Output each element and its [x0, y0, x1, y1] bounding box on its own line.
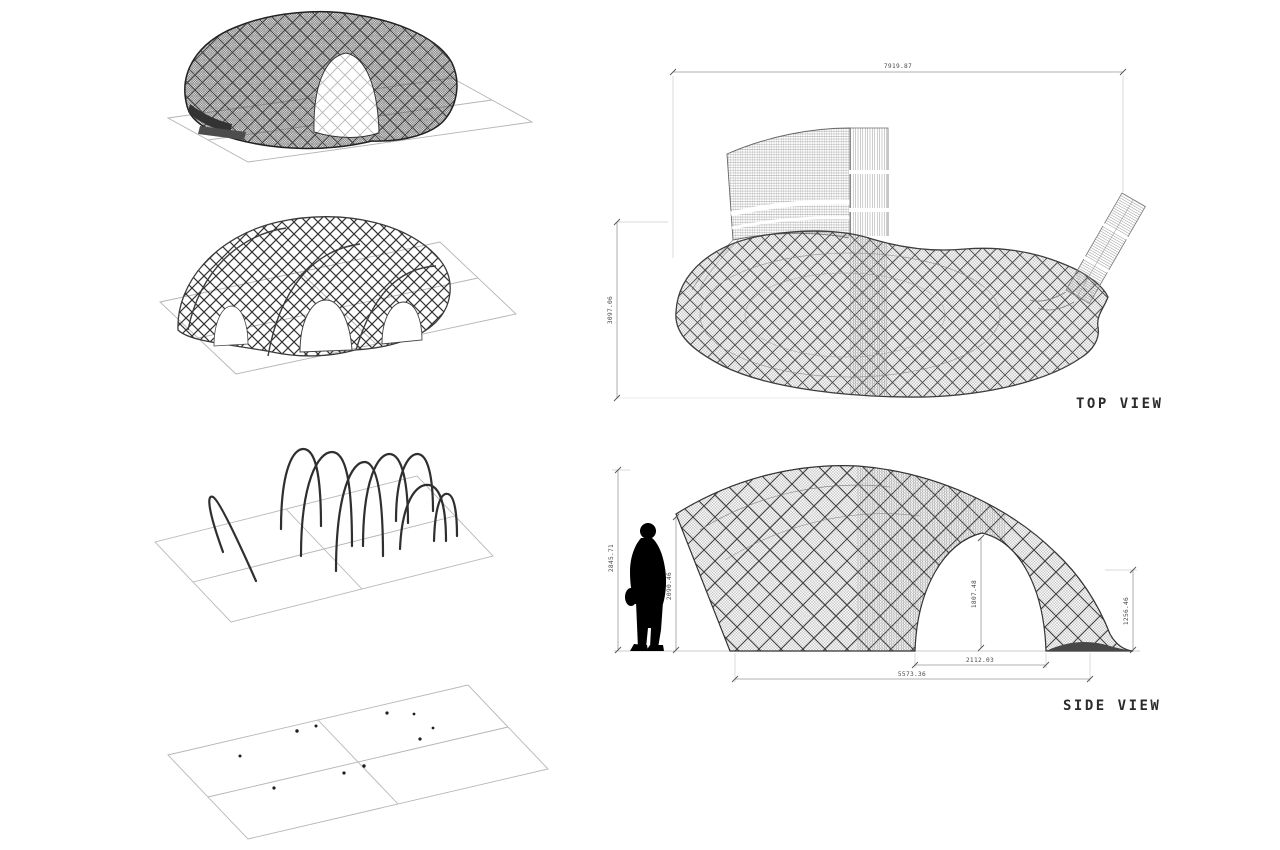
dim-tail-height-label: 1256.46 [1123, 597, 1130, 625]
elevation-shell-mesh [676, 464, 1133, 654]
diagrid-dome [178, 217, 450, 356]
dim-depth-label: 3097.06 [607, 296, 614, 324]
dim-arch-height-label: 1807.48 [971, 580, 978, 608]
side-view-title: SIDE VIEW [1063, 698, 1161, 714]
dim-overall-height-label: 2845.71 [608, 544, 615, 572]
dim-width-label: 7919.87 [884, 63, 912, 70]
exploded-step-base-plan [168, 685, 548, 839]
dim-overall-length-label: 5573.36 [898, 671, 926, 678]
plan-body-mesh [676, 231, 1108, 402]
exploded-step-primary-arches [155, 449, 493, 622]
human-scale-figure [625, 523, 666, 651]
dim-left-height-label: 2090.46 [666, 572, 673, 600]
top-view: 7919.87 3097.06 TOP VIEW [607, 63, 1163, 412]
exploded-step-diagrid-lattice [160, 217, 516, 374]
striped-column-block [849, 128, 889, 241]
exploded-step-mesh-canopy [168, 12, 532, 162]
architectural-drawing-sheet: 7919.87 3097.06 TOP VIEW [0, 0, 1280, 850]
dim-arch-width-label: 2112.03 [966, 657, 994, 664]
side-view: 2845.71 2090.46 1807.48 1256.46 2112.03 … [608, 464, 1161, 714]
rotated-grid-patch [1065, 193, 1146, 304]
anchor-points [239, 711, 435, 789]
ground-plane [168, 685, 548, 839]
top-view-title: TOP VIEW [1076, 396, 1163, 412]
mesh-canopy-shell [185, 12, 457, 149]
arch-tubes [209, 449, 457, 581]
drawing-canvas: 7919.87 3097.06 TOP VIEW [0, 0, 1280, 850]
